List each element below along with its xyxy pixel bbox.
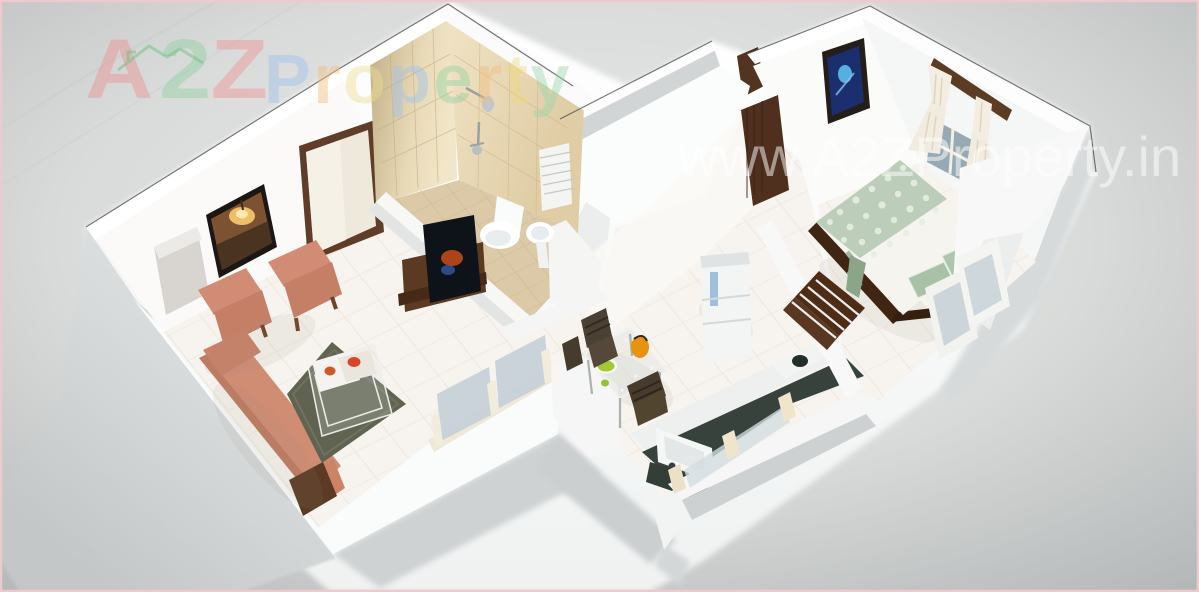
- svg-text:www.A2ZProperty.in: www.A2ZProperty.in: [677, 125, 1181, 188]
- svg-text:2: 2: [159, 22, 211, 116]
- svg-text:Z: Z: [211, 22, 268, 116]
- svg-text:Property: Property: [264, 40, 572, 118]
